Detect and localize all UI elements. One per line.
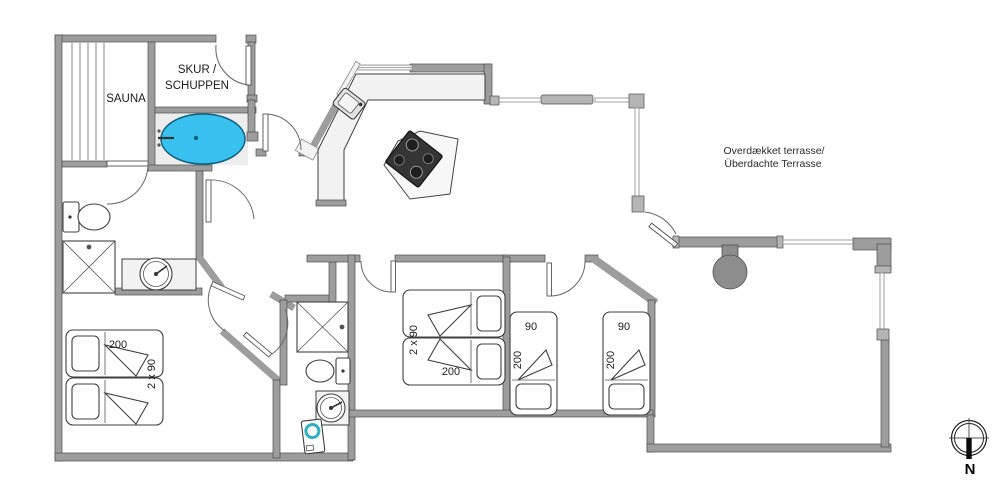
wall-post xyxy=(247,132,258,141)
counter-end-panel xyxy=(316,200,346,206)
bed3-door-leaf xyxy=(547,263,552,296)
shed-door-leaf xyxy=(246,46,251,85)
railing-post-mid xyxy=(877,329,889,340)
railing-ne xyxy=(783,240,855,244)
toilet-bowl-icon xyxy=(78,204,110,230)
compass-rose: N xyxy=(949,418,989,478)
railing-north-b xyxy=(595,98,631,102)
bed-width-label: 2 x 90 xyxy=(408,325,420,355)
pillow-icon xyxy=(72,336,99,371)
terrace-railing xyxy=(490,94,891,340)
terrace-label-line2: Überdachte Terrasse xyxy=(724,158,821,170)
pillow-icon xyxy=(477,344,501,379)
bed2-door-arc xyxy=(361,261,392,292)
floor-plan-svg: 200 2 x 90 2 x 90 200 90 200 90 200 SAUN… xyxy=(0,0,1000,502)
sauna-door-leaf xyxy=(107,161,148,166)
shower-head-icon xyxy=(87,245,92,250)
bedroom-mid-beds: 2 x 90 200 xyxy=(403,290,505,385)
wall-connector xyxy=(329,262,336,302)
entry-door-leaf xyxy=(263,114,268,151)
wall-bed-divider xyxy=(503,257,510,415)
sauna-benches xyxy=(72,43,104,160)
bed-width-label: 90 xyxy=(618,321,630,333)
bed-length-label: 200 xyxy=(605,351,617,369)
washer-panel-icon xyxy=(306,445,314,451)
sauna-door-arc xyxy=(107,164,148,204)
fence-end-post xyxy=(875,266,891,273)
wall-bed2-west xyxy=(348,255,355,460)
toilet-flush-icon xyxy=(341,369,344,372)
floor-plan-page: 200 2 x 90 2 x 90 200 90 200 90 200 SAUN… xyxy=(0,0,1000,502)
bath1-door-arc xyxy=(209,180,254,219)
bed-length-label: 200 xyxy=(512,351,524,369)
shower-head-icon xyxy=(340,325,345,330)
windbreak-cap-e xyxy=(777,236,783,248)
terrace-label-line1: Overdækket terrasse/ xyxy=(724,145,825,157)
railing-east-lower xyxy=(880,273,884,330)
bed-length-label: 200 xyxy=(442,366,460,378)
pillow-icon xyxy=(72,384,99,419)
wall-bath1-east xyxy=(196,171,203,259)
wall-tubroom-east xyxy=(248,100,255,134)
kitchen xyxy=(316,74,485,206)
wall-shed-south xyxy=(155,107,256,113)
wall-west xyxy=(55,35,62,461)
wall-tubroom-south xyxy=(148,165,212,171)
bed2-door-leaf xyxy=(391,261,396,292)
wall-bath2-north xyxy=(285,295,335,302)
wall-north-left xyxy=(55,35,216,42)
tub-knob-icon xyxy=(157,129,160,132)
tub-drain xyxy=(194,136,198,140)
wall-terrace-south xyxy=(647,444,891,452)
toilet-flush-icon xyxy=(68,215,71,218)
tub-knob-icon xyxy=(157,143,160,146)
washing-machine xyxy=(301,419,325,454)
pillow-icon xyxy=(477,296,501,331)
bed-width-label: 2 x 90 xyxy=(146,359,158,389)
shed-door-arc xyxy=(216,45,249,85)
wall-sauna-south xyxy=(62,161,107,167)
shed-label-line1: SKUR / xyxy=(178,64,217,76)
railing-door-post xyxy=(632,196,644,212)
bathroom-2 xyxy=(297,302,350,454)
pillow-icon xyxy=(516,384,551,409)
wall-chamfer xyxy=(594,259,656,303)
railing-post xyxy=(490,96,499,105)
bathroom-1 xyxy=(63,202,196,293)
bedroom-sw-beds: 200 2 x 90 xyxy=(66,330,163,425)
bed3-door-arc xyxy=(551,261,585,296)
hall-door-leaf xyxy=(211,282,245,300)
compass-north-label: N xyxy=(965,461,976,478)
railing-east-upper xyxy=(635,108,639,198)
toilet-bowl-icon xyxy=(306,360,334,382)
pillow-icon xyxy=(609,384,644,409)
shed-label-line2: SCHUPPEN xyxy=(165,80,229,92)
terrace-door-leaf xyxy=(649,223,678,247)
wall-sauna-divider xyxy=(148,42,155,166)
grill xyxy=(713,245,747,289)
entry-door-arc xyxy=(266,114,301,150)
railing-north-a xyxy=(497,98,543,102)
wall-terrace-east xyxy=(881,337,889,447)
washer-door-icon xyxy=(305,424,319,438)
sauna-label: SAUNA xyxy=(106,93,146,105)
railing-section xyxy=(541,95,593,104)
bed-length-label: 200 xyxy=(109,339,127,351)
grill-bowl-icon xyxy=(713,255,747,289)
railing-corner-post xyxy=(629,94,644,108)
wall-kitchen-north xyxy=(410,64,490,72)
wall-nook-east xyxy=(273,380,280,458)
compass-north-needle xyxy=(966,438,971,459)
bath1-door-leaf xyxy=(206,180,211,222)
bed-width-label: 90 xyxy=(525,321,537,333)
wall-hall-nw-diagonal xyxy=(199,257,222,288)
wall-living-south-m xyxy=(395,255,505,262)
bedroom-east-beds: 90 200 90 200 xyxy=(510,312,650,415)
